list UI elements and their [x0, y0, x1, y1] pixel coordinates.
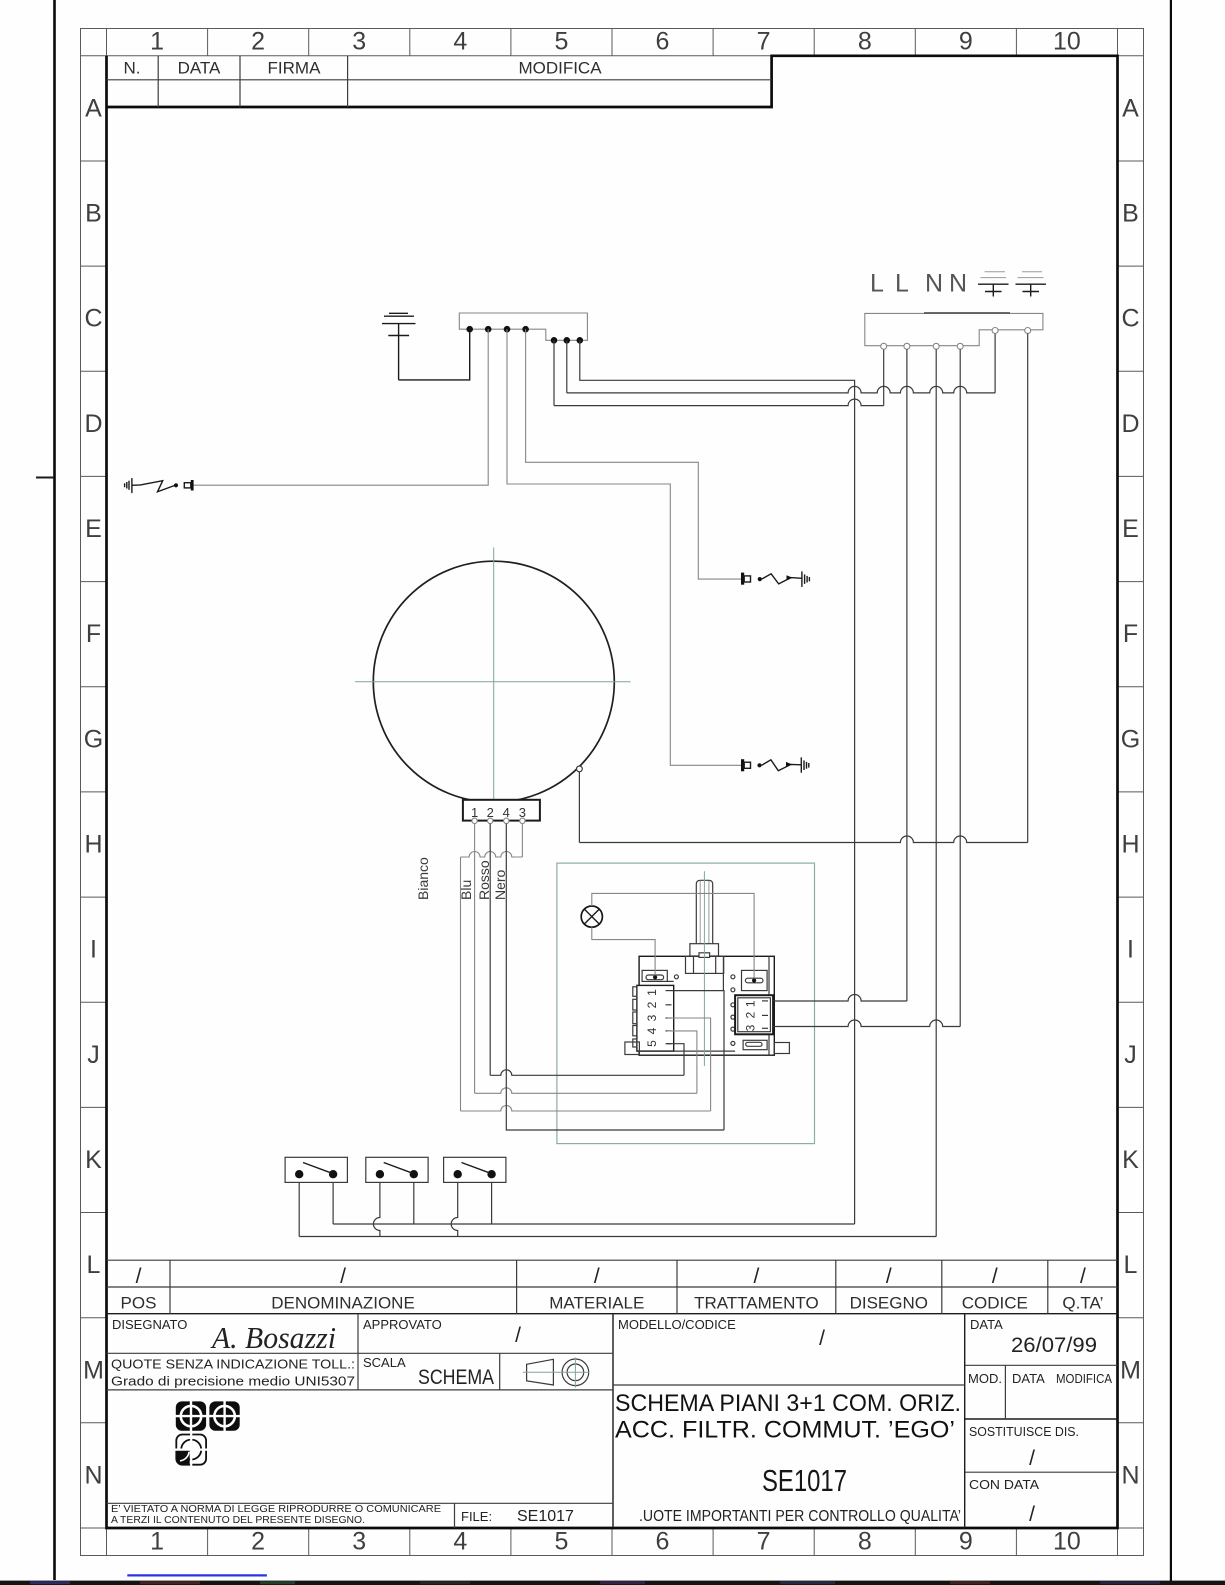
svg-text:SOSTITUISCE DIS.: SOSTITUISCE DIS.	[969, 1424, 1079, 1439]
svg-text:3: 3	[352, 28, 366, 56]
svg-text:/: /	[819, 1327, 825, 1350]
svg-text:26/07/99: 26/07/99	[1011, 1334, 1097, 1357]
svg-text:4: 4	[453, 1528, 467, 1556]
svg-text:SCHEMA: SCHEMA	[418, 1366, 494, 1389]
svg-text:APPROVATO: APPROVATO	[363, 1317, 442, 1332]
svg-text:MOD.: MOD.	[968, 1371, 1002, 1386]
svg-text:4: 4	[645, 1027, 659, 1034]
svg-text:DATA: DATA	[178, 59, 221, 78]
svg-text:POS: POS	[121, 1294, 157, 1313]
svg-text:10: 10	[1053, 1528, 1081, 1556]
svg-text:Bianco: Bianco	[415, 857, 431, 900]
svg-text:DISEGNATO: DISEGNATO	[112, 1317, 187, 1332]
svg-text:J: J	[1124, 1041, 1137, 1069]
svg-text:N.: N.	[124, 59, 141, 78]
svg-text:1: 1	[744, 1000, 758, 1007]
svg-text:Rosso: Rosso	[476, 860, 492, 900]
svg-text:MODIFICA: MODIFICA	[1056, 1371, 1112, 1386]
svg-text:9: 9	[959, 28, 973, 56]
svg-text:F: F	[1123, 620, 1138, 648]
svg-text:/: /	[992, 1265, 998, 1288]
svg-text:A: A	[85, 94, 102, 122]
svg-text:CODICE: CODICE	[962, 1294, 1028, 1313]
svg-text:/: /	[340, 1265, 346, 1288]
svg-text:SCALA: SCALA	[363, 1355, 406, 1370]
svg-text:MATERIALE: MATERIALE	[549, 1294, 644, 1313]
svg-text:FILE:: FILE:	[461, 1509, 492, 1524]
svg-text:A. Bosazzi: A. Bosazzi	[210, 1320, 336, 1355]
svg-text:3: 3	[352, 1528, 366, 1556]
svg-text:SE1017: SE1017	[762, 1463, 847, 1498]
svg-text:2: 2	[645, 1001, 659, 1008]
svg-text:H: H	[1121, 831, 1139, 859]
svg-text:FIRMA: FIRMA	[268, 59, 322, 78]
svg-text:7: 7	[757, 28, 771, 56]
svg-text:M: M	[83, 1356, 104, 1384]
svg-text:10: 10	[1053, 28, 1081, 56]
svg-text:4: 4	[453, 28, 467, 56]
svg-text:5: 5	[645, 1040, 659, 1047]
svg-text:ACC. FILTR. COMMUT. ’EGO’: ACC. FILTR. COMMUT. ’EGO’	[615, 1417, 955, 1444]
svg-text:DATA: DATA	[970, 1317, 1003, 1332]
svg-text:B: B	[85, 200, 102, 228]
svg-text:F: F	[86, 620, 101, 648]
svg-text:8: 8	[858, 28, 872, 56]
svg-text:E: E	[1122, 515, 1139, 543]
svg-text:MODIFICA: MODIFICA	[518, 59, 602, 78]
svg-text:1: 1	[150, 28, 164, 56]
svg-text:N: N	[925, 270, 943, 298]
svg-text:/: /	[1080, 1265, 1086, 1288]
svg-text:6: 6	[656, 28, 670, 56]
svg-text:L: L	[87, 1251, 101, 1279]
svg-text:L: L	[895, 270, 909, 298]
svg-text:Nero: Nero	[492, 869, 508, 900]
svg-text:/: /	[753, 1265, 759, 1288]
svg-text:2: 2	[744, 1012, 758, 1019]
svg-text:TRATTAMENTO: TRATTAMENTO	[694, 1294, 819, 1313]
svg-text:A TERZI IL CONTENUTO DEL PRESE: A TERZI IL CONTENUTO DEL PRESENTE DISEGN…	[111, 1514, 365, 1526]
svg-text:E: E	[85, 515, 102, 543]
svg-text:5: 5	[555, 28, 569, 56]
svg-text:A: A	[1122, 94, 1139, 122]
svg-text:MODELLO/CODICE: MODELLO/CODICE	[618, 1317, 736, 1332]
svg-text:J: J	[87, 1041, 100, 1069]
svg-text:/: /	[1029, 1503, 1035, 1526]
svg-text:3: 3	[744, 1024, 758, 1031]
svg-text:SCHEMA PIANI 3+1 COM. ORIZ.: SCHEMA PIANI 3+1 COM. ORIZ.	[615, 1390, 961, 1417]
svg-text:N: N	[84, 1461, 102, 1489]
svg-text:I: I	[1127, 936, 1134, 964]
svg-text:N: N	[949, 270, 967, 298]
svg-text:C: C	[84, 305, 102, 333]
svg-text:/: /	[136, 1265, 142, 1288]
svg-text:.UOTE IMPORTANTI PER CONTROLLO: .UOTE IMPORTANTI PER CONTROLLO QUALITA’	[639, 1508, 961, 1525]
svg-text:QUOTE SENZA INDICAZIONE TOLL.:: QUOTE SENZA INDICAZIONE TOLL.:	[111, 1357, 355, 1372]
svg-text:1: 1	[645, 989, 659, 996]
svg-text:7: 7	[757, 1528, 771, 1556]
svg-text:D: D	[1121, 410, 1139, 438]
svg-text:1: 1	[150, 1528, 164, 1556]
svg-text:2: 2	[251, 28, 265, 56]
svg-text:/: /	[1029, 1447, 1035, 1470]
svg-text:/: /	[886, 1265, 892, 1288]
svg-text:/: /	[515, 1324, 521, 1347]
svg-text:9: 9	[959, 1528, 973, 1556]
svg-text:Blu: Blu	[458, 880, 474, 900]
svg-text:/: /	[594, 1265, 600, 1288]
svg-text:L: L	[1124, 1251, 1138, 1279]
svg-text:SE1017: SE1017	[517, 1508, 574, 1525]
svg-text:DATA: DATA	[1012, 1371, 1045, 1386]
svg-text:L: L	[870, 270, 884, 298]
svg-text:C: C	[1121, 305, 1139, 333]
svg-text:Q.TA’: Q.TA’	[1062, 1294, 1103, 1313]
svg-text:2: 2	[251, 1528, 265, 1556]
svg-text:K: K	[1122, 1146, 1139, 1174]
svg-text:G: G	[1121, 725, 1140, 753]
svg-text:M: M	[1120, 1356, 1141, 1384]
svg-text:Grado di precisione medio UNI5: Grado di precisione medio UNI5307	[111, 1374, 355, 1389]
svg-text:D: D	[84, 410, 102, 438]
svg-text:B: B	[1122, 200, 1139, 228]
svg-text:8: 8	[858, 1528, 872, 1556]
svg-text:H: H	[84, 831, 102, 859]
svg-text:DENOMINAZIONE: DENOMINAZIONE	[271, 1294, 415, 1313]
svg-text:I: I	[90, 936, 97, 964]
svg-text:3: 3	[645, 1014, 659, 1021]
svg-text:CON DATA: CON DATA	[969, 1477, 1039, 1492]
svg-text:6: 6	[656, 1528, 670, 1556]
svg-text:N: N	[1121, 1461, 1139, 1489]
svg-text:K: K	[85, 1146, 102, 1174]
svg-text:DISEGNO: DISEGNO	[850, 1294, 928, 1313]
svg-text:5: 5	[555, 1528, 569, 1556]
svg-text:G: G	[84, 725, 103, 753]
